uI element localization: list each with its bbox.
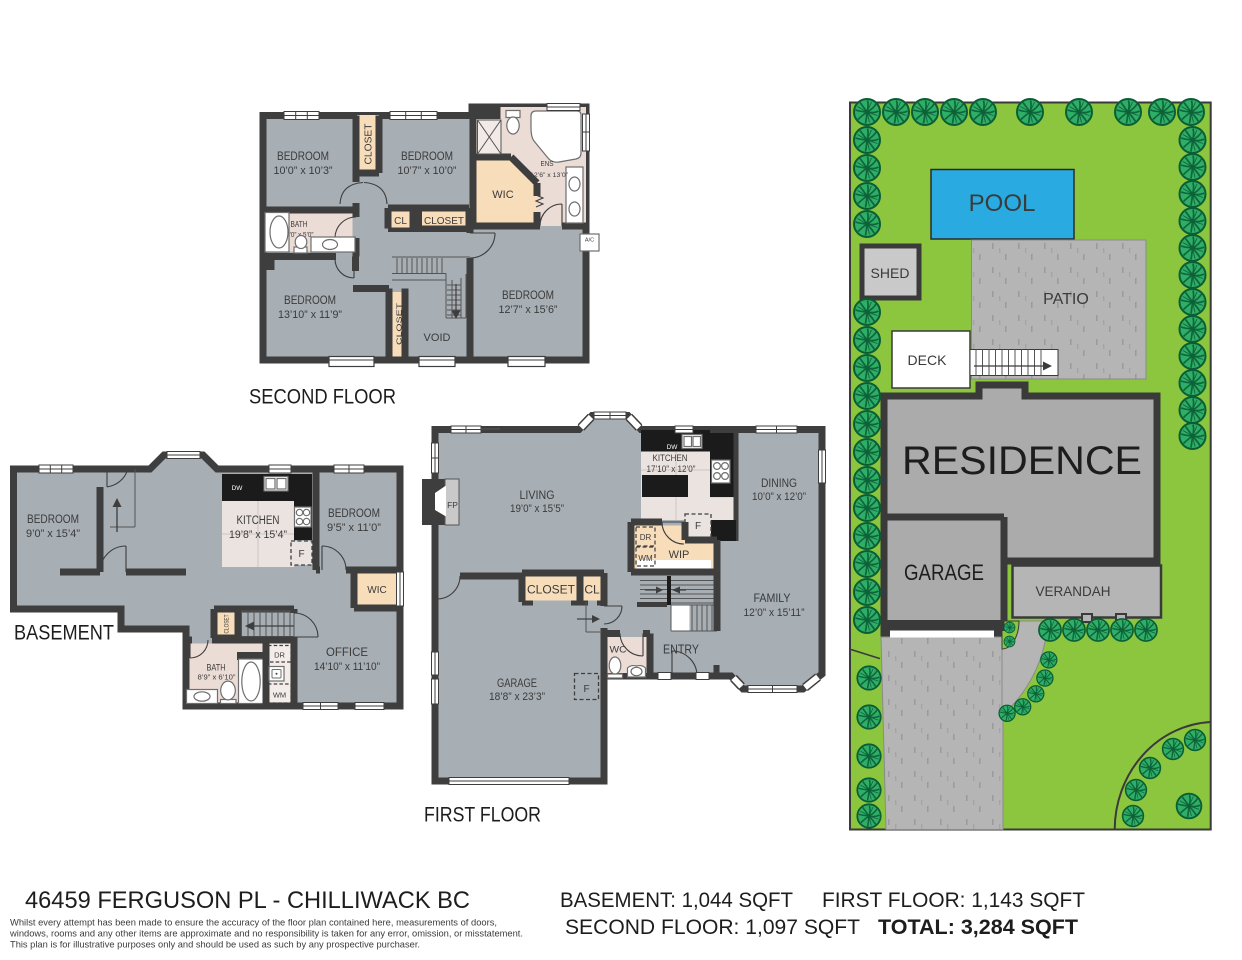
svg-text:BATH: BATH <box>207 663 226 673</box>
svg-text:SECOND FLOOR: SECOND FLOOR <box>249 385 396 409</box>
svg-text:TOTAL: 3,284 SQFT: TOTAL: 3,284 SQFT <box>878 915 1078 939</box>
svg-text:FIRST FLOOR: FIRST FLOOR <box>424 803 541 827</box>
svg-text:VOID: VOID <box>424 332 451 344</box>
svg-text:10’0” x 12’0”: 10’0” x 12’0” <box>752 491 806 503</box>
svg-text:CLOSET: CLOSET <box>395 302 404 345</box>
svg-text:SECOND FLOOR: 1,097 SQFT: SECOND FLOOR: 1,097 SQFT <box>565 915 860 939</box>
svg-text:BEDROOM: BEDROOM <box>277 151 329 163</box>
svg-text:CLOSET: CLOSET <box>527 583 576 597</box>
svg-text:CLOSET: CLOSET <box>364 124 375 165</box>
svg-text:BEDROOM: BEDROOM <box>284 295 336 307</box>
svg-text:14’10” x 11’10”: 14’10” x 11’10” <box>314 661 380 673</box>
svg-text:GARAGE: GARAGE <box>497 678 537 690</box>
svg-text:PATIO: PATIO <box>1043 291 1089 308</box>
svg-text:18’8” x 23’3”: 18’8” x 23’3” <box>489 691 545 703</box>
svg-text:46459 FERGUSON PL - CHILLIWACK: 46459 FERGUSON PL - CHILLIWACK BC <box>25 887 470 914</box>
svg-text:GARAGE: GARAGE <box>904 560 984 585</box>
svg-text:BEDROOM: BEDROOM <box>502 290 554 302</box>
svg-text:WIC: WIC <box>492 189 513 201</box>
svg-text:RESIDENCE: RESIDENCE <box>902 439 1142 483</box>
svg-text:windows, rooms and any other i: windows, rooms and any other items are a… <box>9 929 523 939</box>
svg-text:10’7” x 10’0”: 10’7” x 10’0” <box>398 165 457 177</box>
svg-text:BASEMENT: BASEMENT <box>14 621 114 645</box>
svg-text:F: F <box>583 684 589 695</box>
svg-text:WIC: WIC <box>367 585 386 596</box>
svg-text:VERANDAH: VERANDAH <box>1035 584 1110 599</box>
svg-text:CL: CL <box>394 216 407 227</box>
svg-text:19’0” x 15’5”: 19’0” x 15’5” <box>510 503 564 515</box>
svg-text:WM: WM <box>273 691 286 700</box>
svg-text:F: F <box>695 521 701 532</box>
svg-text:17’10” x 12’0”: 17’10” x 12’0” <box>647 464 696 474</box>
svg-text:F: F <box>298 549 304 560</box>
svg-text:19’8” x 15’4”: 19’8” x 15’4” <box>229 529 287 541</box>
svg-text:DINING: DINING <box>761 478 797 490</box>
svg-text:DECK: DECK <box>908 352 948 368</box>
svg-text:13’10” x 11’9”: 13’10” x 11’9” <box>278 309 342 321</box>
svg-text:BEDROOM: BEDROOM <box>328 508 380 520</box>
svg-text:FAMILY: FAMILY <box>754 591 791 605</box>
svg-text:BEDROOM: BEDROOM <box>27 514 79 526</box>
svg-text:BEDROOM: BEDROOM <box>401 151 453 163</box>
svg-text:FIRST FLOOR: 1,143 SQFT: FIRST FLOOR: 1,143 SQFT <box>822 888 1085 912</box>
svg-text:CL: CL <box>584 583 600 597</box>
svg-text:BATH: BATH <box>291 219 308 229</box>
svg-text:POOL: POOL <box>969 190 1036 217</box>
svg-text:CLOSET: CLOSET <box>224 614 231 633</box>
svg-text:This plan is for illustrative: This plan is for illustrative purposes o… <box>10 940 420 950</box>
svg-text:12’7” x 15’6”: 12’7” x 15’6” <box>499 304 558 316</box>
svg-text:KITCHEN: KITCHEN <box>237 515 280 527</box>
svg-text:Whilst every attempt has been: Whilst every attempt has been made to en… <box>10 918 497 928</box>
svg-text:OFFICE: OFFICE <box>326 647 368 659</box>
svg-text:8’9” x 6’10”: 8’9” x 6’10” <box>198 673 237 682</box>
svg-text:WM: WM <box>638 554 653 563</box>
svg-text:12’6” x 13’0”: 12’6” x 13’0” <box>530 172 568 179</box>
svg-text:DW: DW <box>667 444 679 451</box>
svg-text:KITCHEN: KITCHEN <box>653 453 688 464</box>
svg-text:9’5” x 11’0”: 9’5” x 11’0” <box>327 522 381 534</box>
svg-text:SHED: SHED <box>871 265 910 281</box>
svg-text:BASEMENT: 1,044 SQFT: BASEMENT: 1,044 SQFT <box>560 888 793 912</box>
svg-text:DR: DR <box>640 533 652 542</box>
svg-text:9’0” x 15’4”: 9’0” x 15’4” <box>26 528 80 540</box>
svg-text:FP: FP <box>447 500 458 510</box>
svg-text:WC: WC <box>610 645 628 655</box>
svg-text:ENTRY: ENTRY <box>663 642 699 657</box>
svg-text:A/C: A/C <box>585 238 594 244</box>
svg-text:10’0” x 10’3”: 10’0” x 10’3” <box>274 165 333 177</box>
svg-text:DR: DR <box>274 651 285 660</box>
svg-text:LIVING: LIVING <box>520 490 555 502</box>
svg-text:DW: DW <box>232 485 244 492</box>
svg-text:CLOSET: CLOSET <box>424 216 464 227</box>
svg-text:ENS: ENS <box>541 159 554 168</box>
svg-text:WIP: WIP <box>669 549 690 561</box>
svg-text:12’0” x 15’11”: 12’0” x 15’11” <box>744 607 805 619</box>
